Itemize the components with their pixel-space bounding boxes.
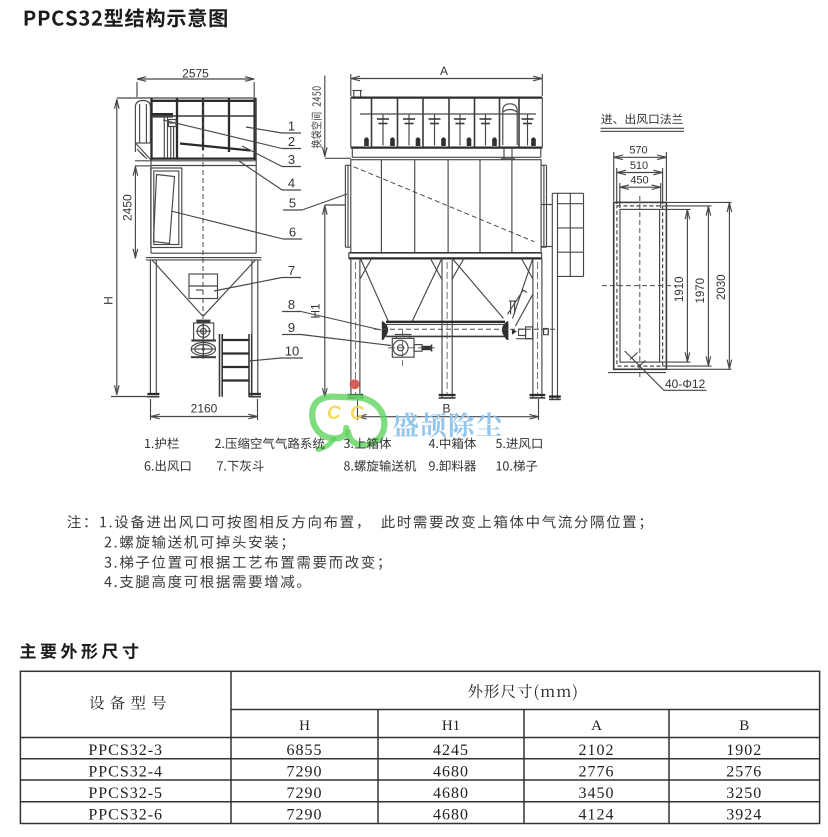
svg-text:2160: 2160 [191,402,218,416]
svg-text:1: 1 [288,119,295,134]
svg-text:2102: 2102 [579,742,615,759]
svg-text:570: 570 [629,145,647,157]
svg-text:PPCS32-3: PPCS32-3 [88,742,163,759]
svg-text:PPCS32-4: PPCS32-4 [88,763,163,780]
svg-text:3250: 3250 [726,785,762,802]
svg-text:7290: 7290 [287,807,323,824]
svg-text:3924: 3924 [726,807,762,824]
svg-text:7290: 7290 [287,763,323,780]
svg-text:2450: 2450 [121,194,135,221]
svg-text:10: 10 [285,344,299,359]
svg-text:C: C [327,403,341,424]
svg-text:4680: 4680 [433,807,469,824]
svg-text:2575: 2575 [182,67,209,81]
svg-text:8: 8 [288,297,295,312]
svg-text:4245: 4245 [433,742,469,759]
svg-text:4: 4 [288,176,295,191]
svg-text:1970: 1970 [695,278,707,304]
svg-text:4680: 4680 [433,763,469,780]
svg-text:5: 5 [289,196,296,211]
svg-text:9: 9 [288,320,295,335]
svg-text:A: A [440,64,448,78]
svg-text:H: H [102,296,116,305]
svg-text:7290: 7290 [287,785,323,802]
svg-text:H1: H1 [442,718,460,734]
svg-text:PPCS32-5: PPCS32-5 [88,785,163,802]
svg-text:6: 6 [289,225,296,240]
svg-text:4124: 4124 [579,807,615,824]
svg-text:1902: 1902 [726,742,762,759]
svg-text:40-Φ12: 40-Φ12 [665,377,706,391]
svg-text:C: C [350,403,364,424]
svg-text:450: 450 [630,175,648,187]
svg-text:A: A [591,718,602,734]
svg-text:2: 2 [288,134,295,149]
svg-text:6855: 6855 [287,742,323,759]
svg-text:H: H [299,718,310,734]
svg-text:PPCS32-6: PPCS32-6 [88,807,163,824]
svg-text:1910: 1910 [674,276,686,302]
svg-text:2030: 2030 [716,274,728,300]
svg-text:510: 510 [630,160,648,172]
svg-text:3: 3 [288,152,295,167]
svg-text:B: B [739,718,749,734]
svg-text:2576: 2576 [726,763,762,780]
svg-text:4680: 4680 [433,785,469,802]
svg-text:2776: 2776 [579,763,615,780]
svg-text:H1: H1 [309,303,323,319]
svg-text:3450: 3450 [579,785,615,802]
svg-text:7: 7 [288,263,295,278]
